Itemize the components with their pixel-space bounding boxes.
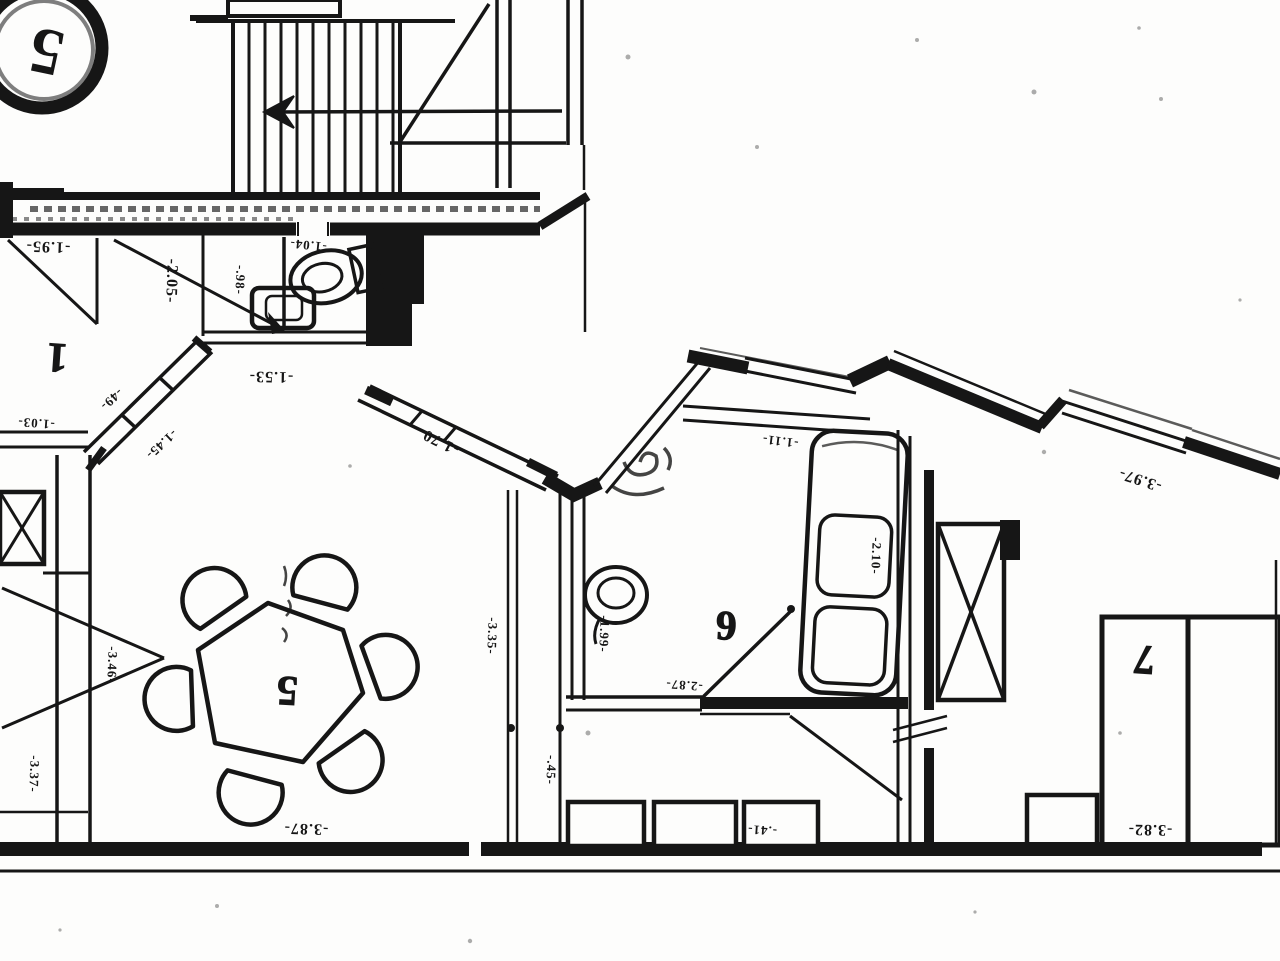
dim-label-195: -1.95- — [25, 237, 70, 256]
dim-label-045: -.45- — [543, 755, 559, 785]
dim-label-098: -.98- — [232, 265, 248, 295]
wardrobe — [1102, 617, 1280, 845]
dim-label-346: -3.46- — [104, 646, 120, 684]
dim-label-199: -1.99- — [596, 615, 612, 653]
dim-label-145: -1.45- — [143, 426, 181, 462]
dim-label-382: -3.82- — [1128, 821, 1173, 839]
dim-label-387: -3.87- — [283, 819, 328, 838]
dim-label-103: -1.03- — [17, 415, 55, 433]
dim-label-104: -1.04- — [289, 236, 328, 255]
room-label-6: 6 — [715, 601, 738, 648]
circled-stair-marker: 5 — [0, 0, 102, 108]
top-exterior-wall — [0, 182, 588, 332]
window-x-box — [0, 492, 44, 564]
dim-label-335: -3.35- — [484, 617, 500, 655]
room-label-7: 7 — [1132, 635, 1156, 682]
dim-label-205: -2.05- — [162, 258, 181, 303]
dim-label-337: -3.37- — [26, 755, 42, 793]
pencil-marks — [282, 566, 291, 642]
room-6: 6 — [566, 490, 908, 710]
shaft-x-brace — [938, 520, 1020, 700]
exterior-zigzag-wall — [683, 348, 1280, 474]
stair-marker-label: 5 — [22, 12, 69, 90]
dim-label-210: -2.10- — [868, 537, 884, 575]
dim-label-111: -1.11- — [761, 432, 799, 451]
dim-label-041: -.41- — [747, 822, 778, 839]
toilet-2-icon — [585, 567, 647, 644]
dim-label-397: -3.97- — [1116, 465, 1164, 495]
bathtub-icon — [799, 430, 909, 697]
room-label-1: 1 — [45, 333, 69, 380]
floorplan-svg: 5 — [0, 0, 1280, 961]
room-label-5: 5 — [276, 666, 299, 713]
dim-label-153: -1.53- — [249, 368, 294, 386]
bay-window-hall — [358, 360, 710, 495]
floor-plan-page: 5 — [0, 0, 1280, 961]
room-7: 7 — [1027, 560, 1280, 845]
dim-label-049: -49- — [97, 385, 126, 413]
dim-label-287: -2.87- — [665, 677, 703, 695]
staircase — [190, 0, 584, 192]
